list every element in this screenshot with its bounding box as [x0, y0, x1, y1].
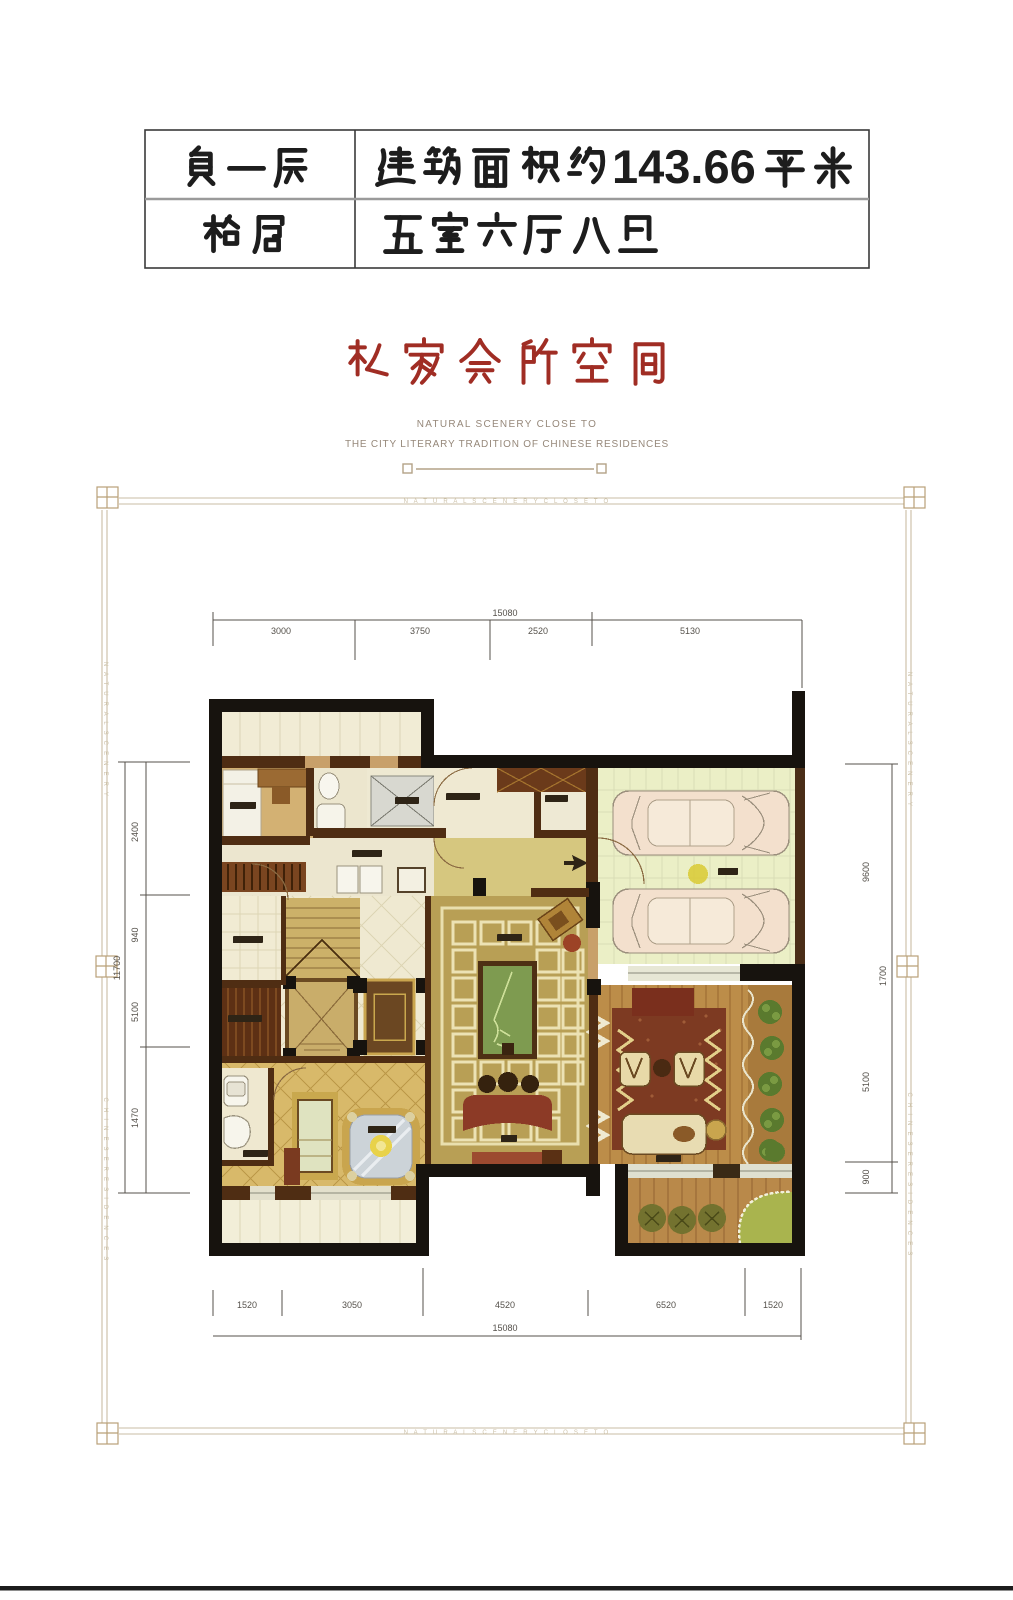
svg-text:15080: 15080 — [492, 608, 517, 618]
svg-text:3000: 3000 — [271, 626, 291, 636]
svg-text:4520: 4520 — [495, 1300, 515, 1310]
svg-text:2400: 2400 — [130, 822, 140, 842]
svg-text:6520: 6520 — [656, 1300, 676, 1310]
svg-text:N A T U R A L S C E N E R Y C: N A T U R A L S C E N E R Y C L O S E T … — [404, 499, 611, 505]
svg-text:NATURAL SCENERY CLOSE TO: NATURAL SCENERY CLOSE TO — [417, 419, 598, 430]
svg-text:C H I N E S E R E S I D E N C: C H I N E S E R E S I D E N C E S — [906, 1093, 912, 1258]
svg-text:940: 940 — [130, 927, 140, 942]
svg-text:9600: 9600 — [861, 862, 871, 882]
svg-text:C H I N E S E R E S I D E N C: C H I N E S E R E S I D E N C E S — [102, 1098, 108, 1263]
svg-text:N A T U R A L S C E N E R Y: N A T U R A L S C E N E R Y — [102, 662, 108, 798]
svg-text:1700: 1700 — [878, 966, 888, 986]
svg-text:143.66: 143.66 — [612, 140, 756, 193]
svg-text:3050: 3050 — [342, 1300, 362, 1310]
svg-text:THE CITY LITERARY TRADITION OF: THE CITY LITERARY TRADITION OF CHINESE R… — [345, 439, 669, 450]
svg-text:3750: 3750 — [410, 626, 430, 636]
svg-text:5100: 5100 — [130, 1002, 140, 1022]
svg-text:1520: 1520 — [763, 1300, 783, 1310]
svg-text:1470: 1470 — [130, 1108, 140, 1128]
svg-text:900: 900 — [861, 1169, 871, 1184]
svg-text:5130: 5130 — [680, 626, 700, 636]
svg-text:N A T U R A L S C E N E R Y C: N A T U R A L S C E N E R Y C L O S E T … — [404, 1430, 611, 1436]
svg-text:N A T U R A L S C E N E R Y: N A T U R A L S C E N E R Y — [906, 672, 912, 808]
svg-text:15080: 15080 — [492, 1323, 517, 1333]
svg-text:1520: 1520 — [237, 1300, 257, 1310]
svg-text:2520: 2520 — [528, 626, 548, 636]
svg-text:5100: 5100 — [861, 1072, 871, 1092]
svg-text:11700: 11700 — [112, 956, 122, 980]
